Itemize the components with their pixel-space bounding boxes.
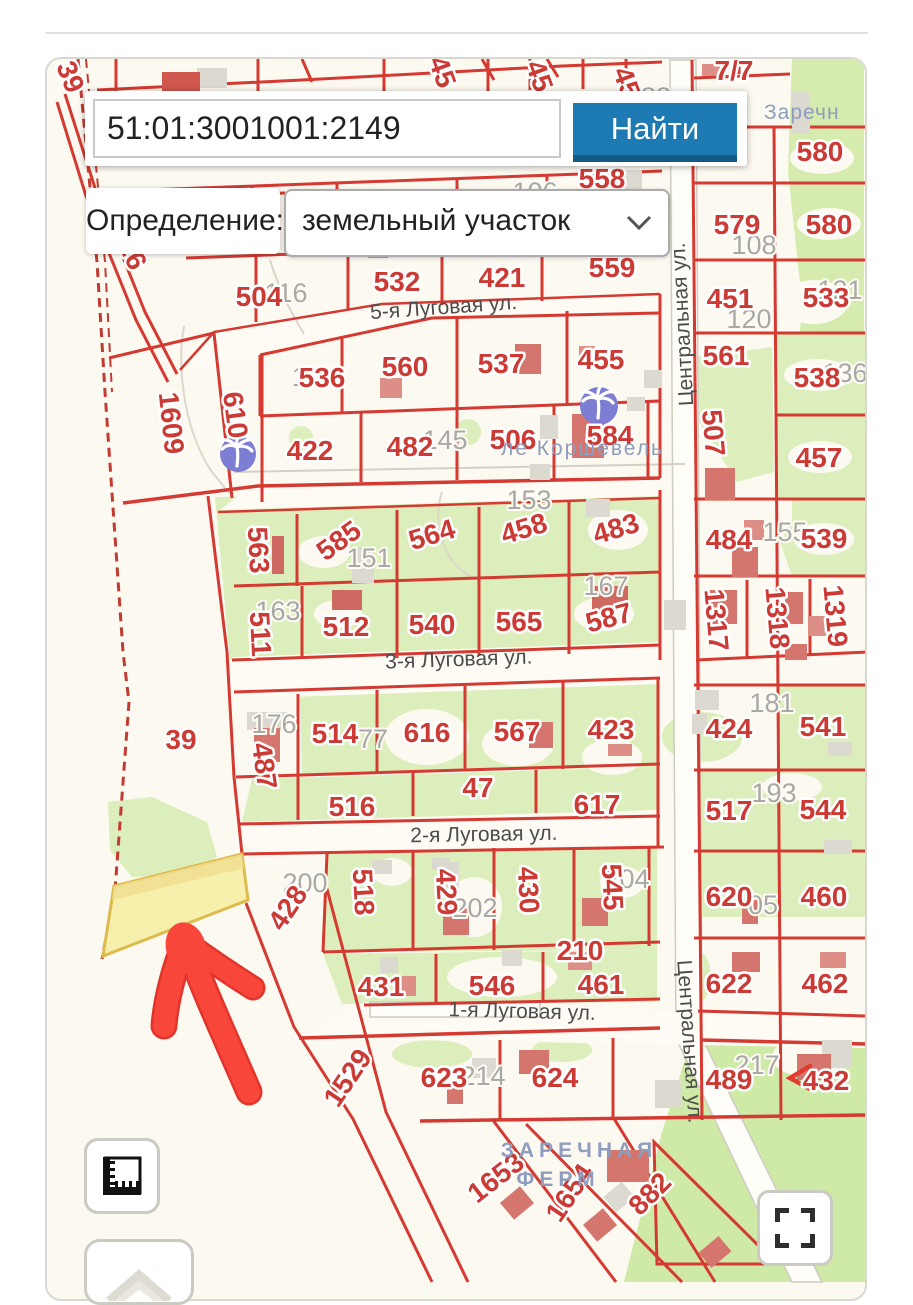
svg-text:ЗАРЕЧНАЯ: ЗАРЕЧНАЯ [501, 1139, 658, 1162]
svg-text:516: 516 [329, 791, 376, 822]
svg-text:77: 77 [358, 724, 388, 754]
svg-text:ФЕРМ: ФЕРМ [516, 1168, 599, 1191]
svg-text:517: 517 [706, 795, 753, 826]
svg-text:579: 579 [714, 209, 761, 240]
svg-text:181: 181 [749, 688, 794, 718]
svg-text:622: 622 [706, 968, 753, 999]
svg-text:424: 424 [706, 713, 753, 744]
svg-text:545: 545 [596, 863, 629, 911]
svg-text:432: 432 [803, 1065, 850, 1096]
svg-text:623: 623 [421, 1062, 468, 1093]
svg-text:193: 193 [751, 778, 796, 808]
svg-text:610: 610 [217, 390, 254, 441]
svg-text:ле Коршевель: ле Коршевель [501, 437, 664, 460]
svg-text:563: 563 [242, 526, 275, 574]
svg-text:422: 422 [287, 435, 334, 466]
svg-text:1318: 1318 [759, 586, 795, 651]
svg-text:532: 532 [374, 266, 421, 297]
svg-text:565: 565 [496, 606, 543, 637]
svg-text:504: 504 [236, 281, 283, 312]
svg-text:539: 539 [801, 523, 848, 554]
svg-text:423: 423 [588, 714, 635, 745]
svg-text:616: 616 [404, 717, 451, 748]
svg-text:1319: 1319 [817, 584, 853, 649]
svg-text:538: 538 [794, 362, 841, 393]
svg-text:451: 451 [707, 283, 754, 314]
svg-text:541: 541 [800, 711, 847, 742]
svg-text:536: 536 [299, 362, 346, 393]
svg-text:461: 461 [578, 969, 625, 1000]
svg-text:537: 537 [478, 348, 525, 379]
svg-text:Заречн: Заречн [764, 101, 840, 124]
svg-text:546: 546 [469, 970, 516, 1001]
svg-text:512: 512 [323, 611, 370, 642]
svg-text:507: 507 [696, 408, 731, 457]
svg-text:624: 624 [532, 1062, 579, 1093]
svg-text:540: 540 [409, 609, 456, 640]
svg-text:39: 39 [165, 724, 196, 755]
svg-text:561: 561 [703, 340, 750, 371]
svg-text:518: 518 [347, 868, 380, 916]
svg-text:1-я Луговая ул.: 1-я Луговая ул. [448, 998, 596, 1025]
svg-text:484: 484 [706, 524, 753, 555]
svg-text:617: 617 [574, 789, 621, 820]
svg-text:457: 457 [796, 442, 843, 473]
svg-text:430: 430 [512, 866, 545, 914]
svg-text:620: 620 [706, 881, 753, 912]
svg-text:560: 560 [382, 351, 429, 382]
svg-text:580: 580 [797, 136, 844, 167]
svg-text:431: 431 [358, 971, 405, 1002]
svg-text:455: 455 [578, 344, 625, 375]
svg-text:47: 47 [462, 772, 493, 803]
svg-text:489: 489 [706, 1064, 753, 1095]
svg-text:567: 567 [494, 716, 541, 747]
svg-text:580: 580 [806, 209, 853, 240]
svg-text:1317: 1317 [698, 588, 734, 653]
svg-text:460: 460 [801, 881, 848, 912]
svg-text:482: 482 [387, 431, 434, 462]
svg-text:210: 210 [557, 935, 604, 966]
svg-text:176: 176 [251, 709, 296, 739]
svg-text:2-я Луговая ул.: 2-я Луговая ул. [410, 822, 558, 848]
svg-text:533: 533 [803, 282, 850, 313]
svg-text:1609: 1609 [153, 390, 190, 455]
svg-text:167: 167 [583, 571, 628, 601]
svg-text:511: 511 [244, 611, 277, 658]
svg-text:544: 544 [800, 794, 847, 825]
svg-text:05: 05 [748, 890, 778, 920]
svg-text:462: 462 [802, 968, 849, 999]
svg-text:429: 429 [430, 868, 463, 916]
svg-text:7/7: 7/7 [715, 59, 754, 86]
svg-text:487: 487 [246, 741, 283, 792]
svg-text:514: 514 [312, 718, 359, 749]
svg-text:421: 421 [479, 262, 526, 293]
